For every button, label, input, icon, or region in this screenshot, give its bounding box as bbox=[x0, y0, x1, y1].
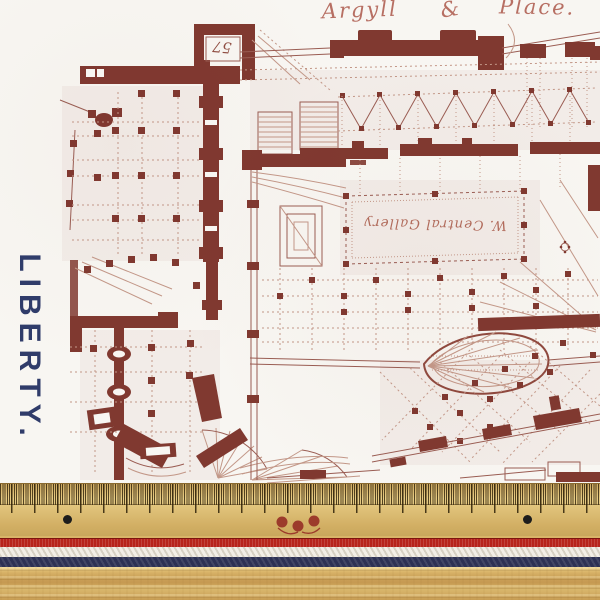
wood-surface bbox=[0, 567, 600, 600]
ruler-centimeter-ticks bbox=[0, 484, 600, 513]
liberty-fabric-product-photo: Argyll & Place. 57 bbox=[0, 0, 600, 600]
ruler-5cm-dot-left bbox=[63, 515, 72, 524]
gallery-label: W. Central Gallery bbox=[363, 215, 506, 233]
ruler-5cm-dot-right bbox=[523, 515, 532, 524]
liberty-logo-text: LIBERTY. bbox=[8, 248, 50, 448]
street-name-right: Place. bbox=[498, 0, 576, 20]
room-number-label: 57 bbox=[211, 37, 232, 57]
architectural-floor-plan-print: Argyll & Place. 57 bbox=[0, 0, 600, 483]
fabric-panel: Argyll & Place. 57 bbox=[0, 0, 600, 483]
tricolor-ribbon bbox=[0, 536, 600, 567]
ruler bbox=[0, 483, 600, 536]
ribbon-navy-stripe bbox=[0, 557, 600, 567]
street-name-label: Argyll & Place. bbox=[319, 0, 575, 23]
street-name-left: Argyll bbox=[319, 0, 398, 23]
ribbon-white-stripe bbox=[0, 547, 600, 557]
ribbon-red-stripe bbox=[0, 538, 600, 547]
street-name-ampersand: & bbox=[439, 0, 464, 23]
